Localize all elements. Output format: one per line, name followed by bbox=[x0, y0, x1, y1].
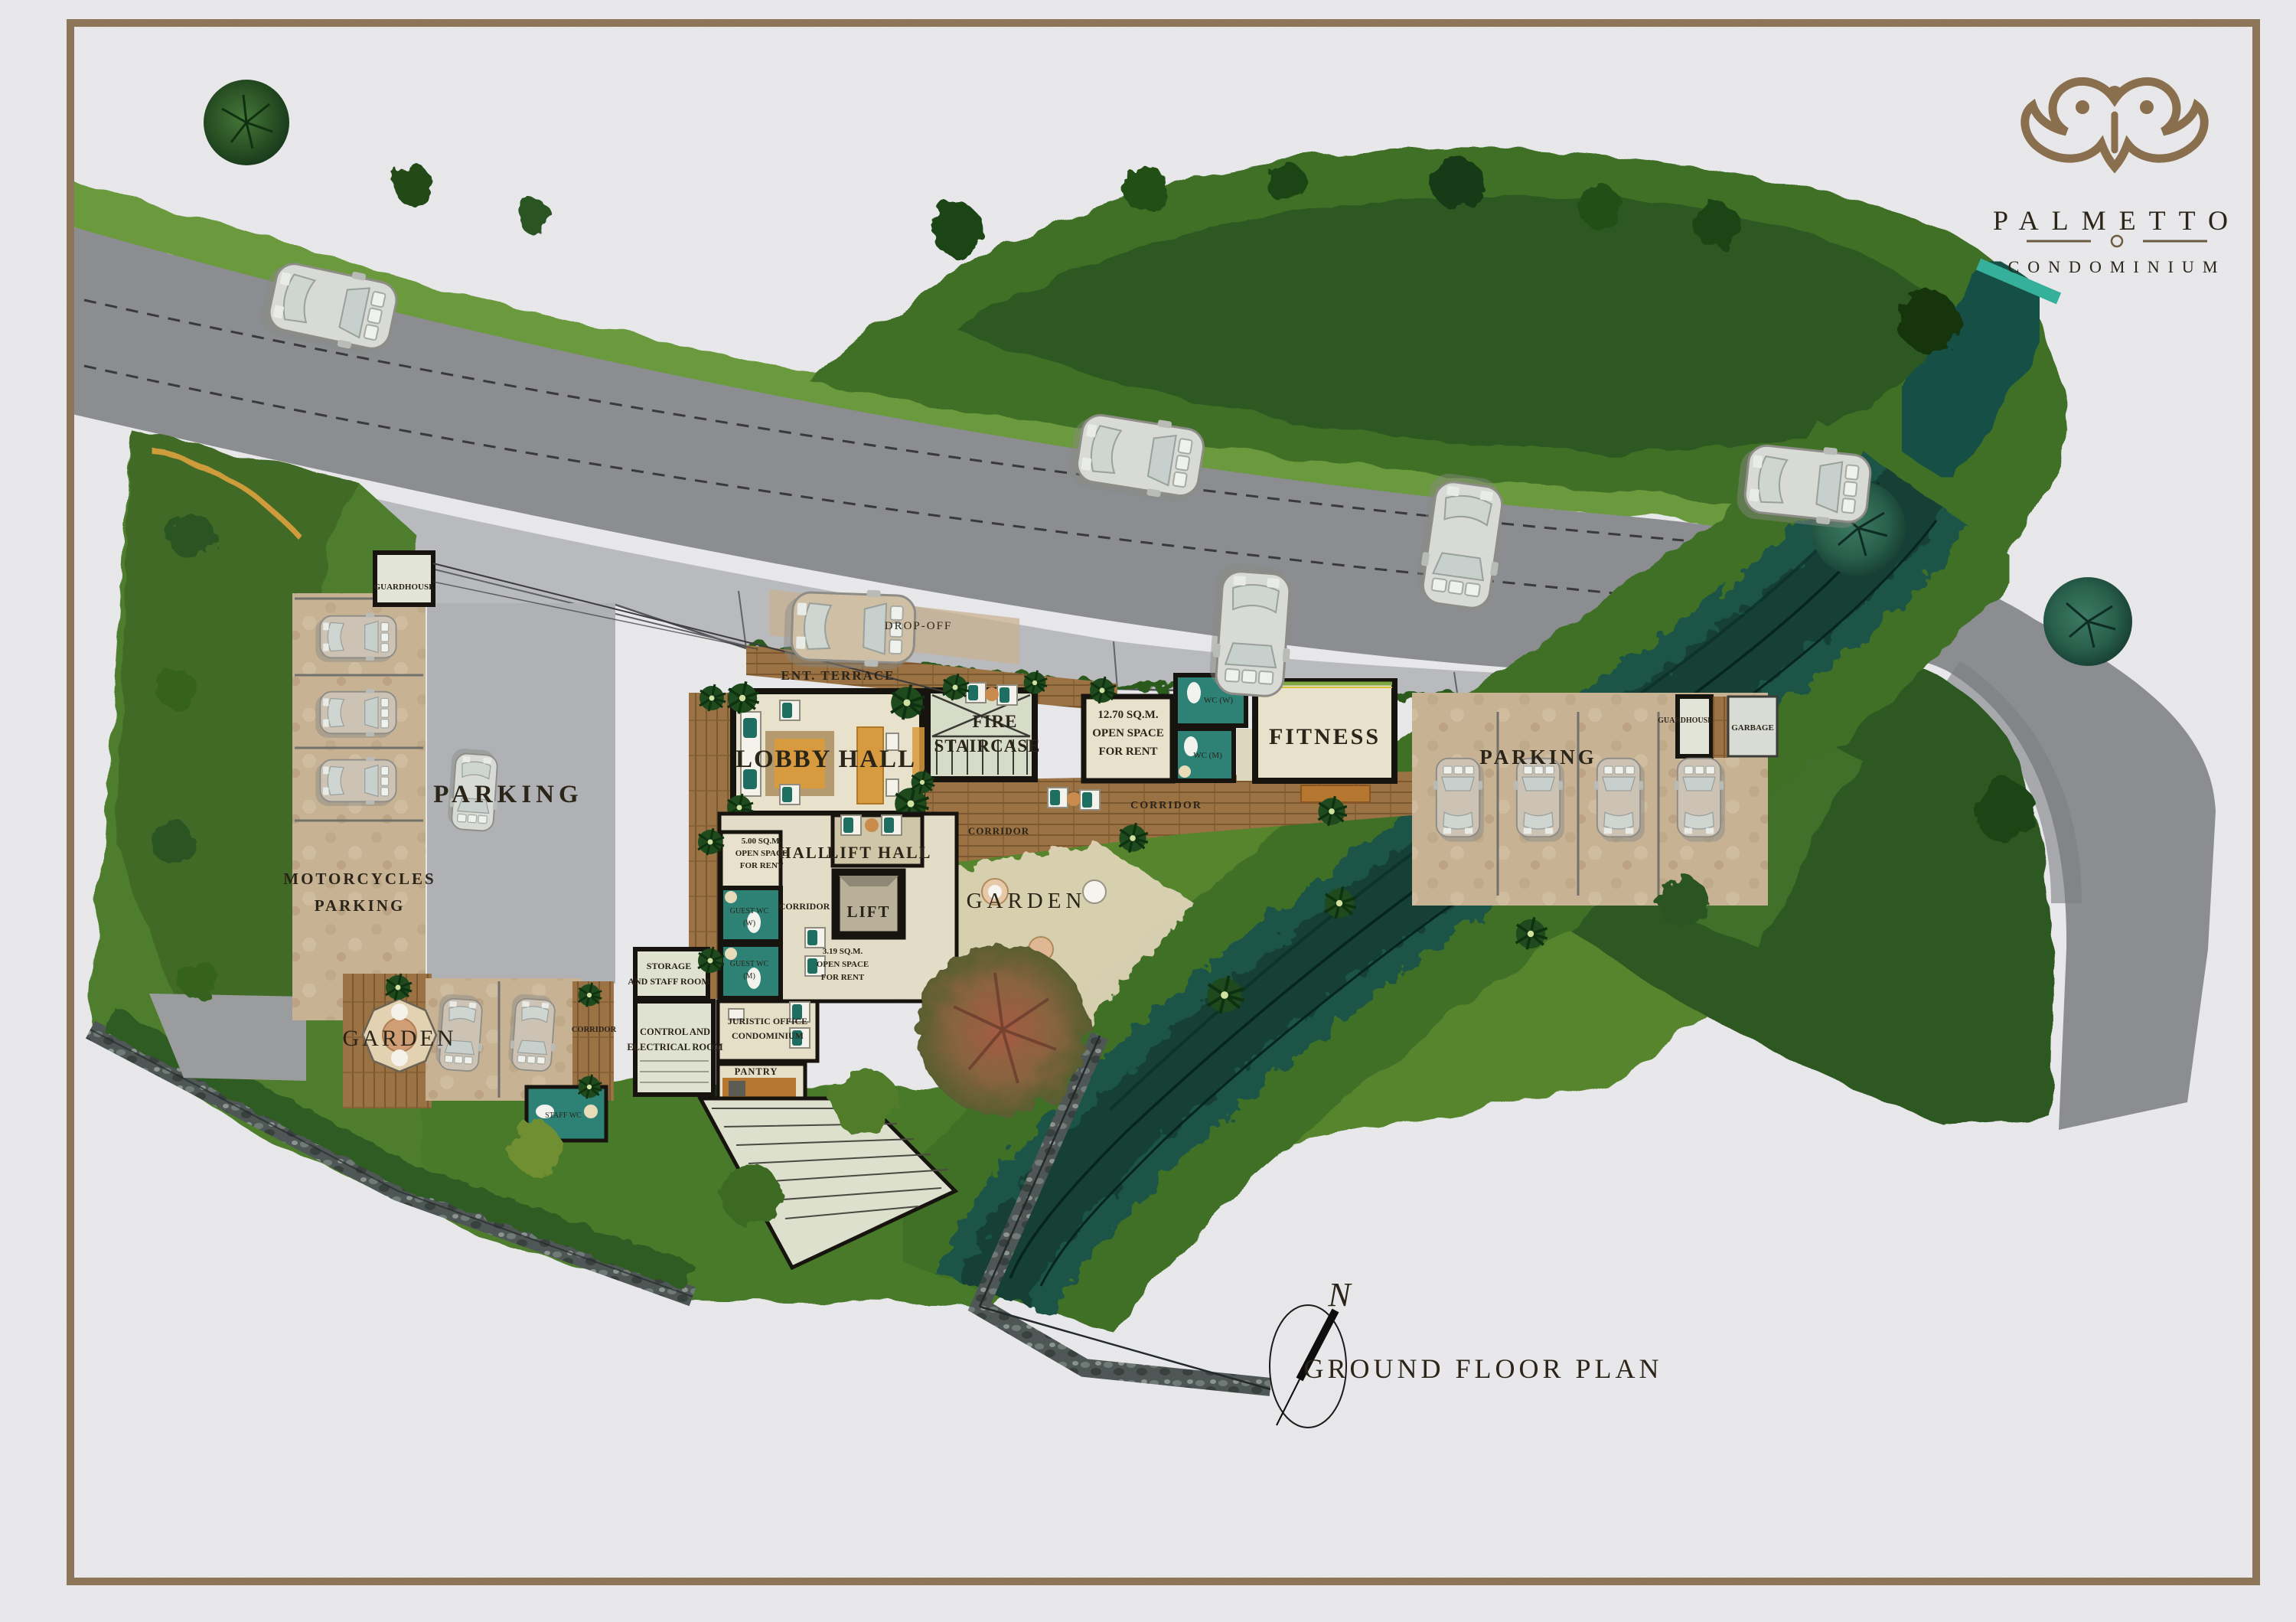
logo-subtitle: CONDOMINIUM bbox=[2008, 257, 2226, 276]
label-guardhouse-east: GUARDHOUSE bbox=[1658, 716, 1713, 725]
label-1270-2: OPEN SPACE bbox=[1092, 727, 1163, 739]
car-stall-e2 bbox=[1514, 759, 1564, 842]
label-juristic-2: CONDOMINIUM bbox=[732, 1030, 804, 1041]
label-lobby-hall: LOBBY HALL bbox=[735, 746, 916, 773]
label-storage-2: AND STAFF ROOM bbox=[628, 976, 709, 987]
guardhouse-deck bbox=[1713, 697, 1728, 758]
label-staff-wc: STAFF WC bbox=[545, 1111, 582, 1120]
label-319-2: OPEN SPACE bbox=[817, 960, 869, 969]
label-corridor-west: CORRIDOR bbox=[572, 1026, 617, 1034]
label-500-1: 5.00 SQ.M. bbox=[742, 837, 782, 846]
car-stall-w2 bbox=[315, 689, 396, 738]
room-storage bbox=[635, 949, 708, 998]
label-hall: HALL bbox=[778, 844, 830, 862]
label-1270-3: FOR RENT bbox=[1098, 746, 1157, 758]
label-pantry: PANTRY bbox=[735, 1066, 778, 1077]
room-guardhouse-west bbox=[375, 553, 433, 605]
label-319-1: 3.19 SQ.M. bbox=[823, 947, 863, 956]
site-plan-drawing: PARKING MOTORCYCLES PARKING GUARDHOUSE G… bbox=[0, 0, 2296, 1622]
label-fitness: FITNESS bbox=[1269, 724, 1381, 749]
label-parking-east: PARKING bbox=[1479, 746, 1597, 769]
label-guardhouse-west: GUARDHOUSE bbox=[374, 583, 435, 592]
label-fire-2: STAIRCASE bbox=[934, 736, 1041, 756]
label-guest-wc-m-2: (M) bbox=[743, 972, 755, 981]
label-garden-central: GARDEN bbox=[967, 889, 1087, 913]
logo-name: PALMETTO bbox=[1993, 205, 2241, 236]
plan-title: GROUND FLOOR PLAN bbox=[1303, 1353, 1662, 1384]
car-stall-e4 bbox=[1675, 759, 1725, 842]
label-storage-1: STORAGE bbox=[647, 961, 691, 971]
label-fire-1: FIRE bbox=[973, 712, 1018, 731]
label-wc-m: WC (M) bbox=[1193, 751, 1222, 760]
label-garbage: GARBAGE bbox=[1731, 723, 1774, 733]
car-apron bbox=[1208, 563, 1296, 698]
room-guardhouse-east bbox=[1678, 697, 1711, 756]
label-corridor-main: CORRIDOR bbox=[1130, 800, 1202, 811]
label-corridor-hall: CORRIDOR bbox=[779, 901, 830, 912]
car-stall-sw2 bbox=[507, 994, 558, 1072]
label-control-2: ELECTRICAL ROOM bbox=[627, 1042, 723, 1053]
label-500-3: FOR RENT bbox=[740, 861, 784, 870]
label-guest-wc-w-1: GUEST WC bbox=[730, 907, 769, 915]
label-motorcycles-2: PARKING bbox=[315, 896, 406, 915]
car-stall-e3 bbox=[1594, 759, 1645, 842]
label-guest-wc-m-1: GUEST WC bbox=[730, 960, 769, 968]
label-lift: LIFT bbox=[846, 902, 890, 921]
car-stall-w3 bbox=[315, 757, 396, 806]
label-control-1: CONTROL AND bbox=[640, 1026, 710, 1037]
label-319-3: FOR RENT bbox=[821, 973, 865, 982]
label-motorcycles-1: MOTORCYCLES bbox=[283, 870, 435, 888]
label-ent-terrace: ENT. TERRACE bbox=[781, 668, 895, 683]
label-1270-1: 12.70 SQ.M. bbox=[1097, 709, 1158, 721]
label-garden-west: GARDEN bbox=[343, 1026, 457, 1051]
car-stall-e1 bbox=[1433, 759, 1484, 842]
label-guest-wc-w-2: (W) bbox=[743, 919, 755, 928]
car-stall-w1 bbox=[315, 613, 396, 662]
label-parking-west: PARKING bbox=[433, 781, 582, 808]
ground-floor-plan-sheet: PARKING MOTORCYCLES PARKING GUARDHOUSE G… bbox=[0, 0, 2296, 1622]
room-fire-staircase bbox=[928, 690, 1035, 779]
label-drop-off: DROP-OFF bbox=[885, 620, 953, 632]
label-lift-hall: LIFT HALL bbox=[827, 843, 932, 862]
label-juristic-1: JURISTIC OFFICE bbox=[728, 1016, 807, 1026]
north-letter: N bbox=[1327, 1276, 1352, 1314]
label-corridor-inner: CORRIDOR bbox=[968, 825, 1029, 837]
label-wc-w: WC (W) bbox=[1204, 696, 1234, 705]
